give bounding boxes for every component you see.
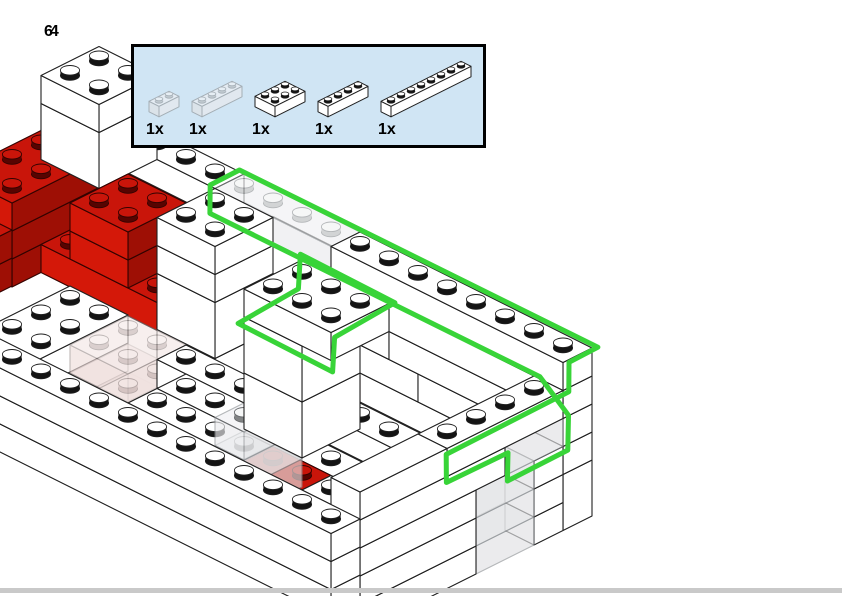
part-count: 1x: [378, 122, 396, 138]
part-count: 1x: [189, 122, 207, 138]
part-item: 1x: [189, 75, 245, 138]
step-number: 64: [44, 24, 56, 40]
page-footer-bar: [0, 588, 842, 593]
parts-callout-box: 1x1x1x1x1x: [131, 44, 486, 148]
part-thumbnail-brick-1x4-trans-clear: [189, 75, 245, 119]
part-count: 1x: [315, 122, 333, 138]
part-thumbnail-brick-2x3-white: [252, 75, 308, 119]
part-thumbnail-brick-1x2-trans-clear: [146, 85, 182, 119]
part-count: 1x: [252, 122, 270, 138]
part-count: 1x: [146, 122, 164, 138]
part-item: 1x: [252, 75, 308, 138]
part-item: 1x: [315, 75, 371, 138]
part-thumbnail-brick-1x8-white: [378, 55, 474, 119]
part-item: 1x: [146, 85, 182, 138]
lego-instruction-page: 64 1x1x1x1x1x: [0, 0, 842, 596]
part-item: 1x: [378, 55, 474, 138]
part-thumbnail-brick-1x4-white: [315, 75, 371, 119]
